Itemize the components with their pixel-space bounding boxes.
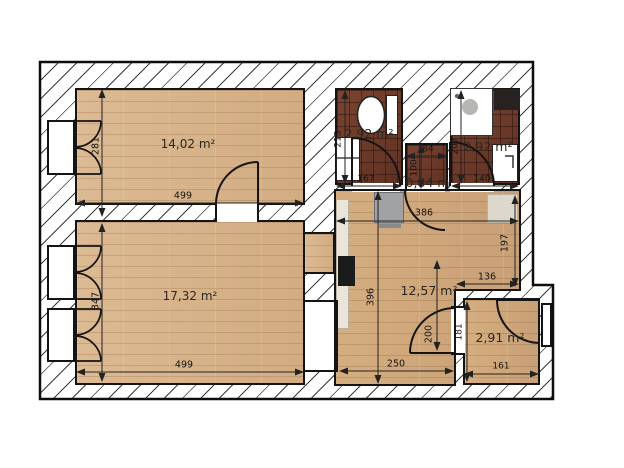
sink-right-tap-icon: [505, 156, 513, 168]
dim-label-bath-right-height: 207: [452, 137, 461, 154]
dim-label-bath-right-width: 140: [473, 176, 490, 185]
floor-plan: 14,02 m² 17,32 m² 2,92 m² 0,84 m² 2,92 m…: [0, 0, 624, 468]
dim-label-kitchen-right: 197: [500, 234, 510, 252]
area-label-kitchen: 12,57 m²: [401, 285, 458, 298]
outer-wall-outline: [40, 62, 553, 399]
window-arc-bedroom-2: [75, 309, 101, 361]
door-arc-living: [216, 162, 258, 204]
shower-head-icon: [455, 94, 459, 98]
dim-label-bath-left-width: 167: [357, 176, 374, 185]
area-label-living: 14,02 m²: [161, 138, 216, 150]
area-label-bath-right: 2,92 m²: [464, 141, 513, 154]
dim-label-kitchen-left: 396: [366, 288, 376, 306]
dim-label-kitchen-door: 200: [424, 325, 434, 343]
dim-label-bedroom-height: 347: [91, 292, 101, 310]
area-label-bath-left: 2,92 m²: [345, 128, 394, 141]
shower-drain-icon: [462, 99, 478, 115]
area-label-bedroom: 17,32 m²: [163, 290, 218, 302]
dim-label-kitchen-top: 386: [415, 208, 433, 218]
plan-linework: [0, 0, 624, 468]
dim-label-wc-height: 100: [411, 159, 420, 176]
dim-label-storage-height: 181: [456, 323, 465, 340]
dim-label-living-width: 499: [174, 191, 192, 201]
dim-label-living-height: 281: [91, 137, 101, 155]
dim-label-bath-left-height: 213: [335, 130, 344, 147]
dim-label-kitchen-mid: 136: [478, 272, 496, 282]
dim-label-wc-width: 84: [422, 146, 433, 155]
area-label-wc: 0,84 m²: [406, 177, 455, 190]
dim-label-kitchen-bottom: 250: [387, 359, 405, 369]
dim-label-storage-width: 161: [492, 363, 509, 372]
area-label-storage: 2,91 m²: [476, 332, 525, 345]
dim-label-bedroom-width: 499: [175, 360, 193, 370]
